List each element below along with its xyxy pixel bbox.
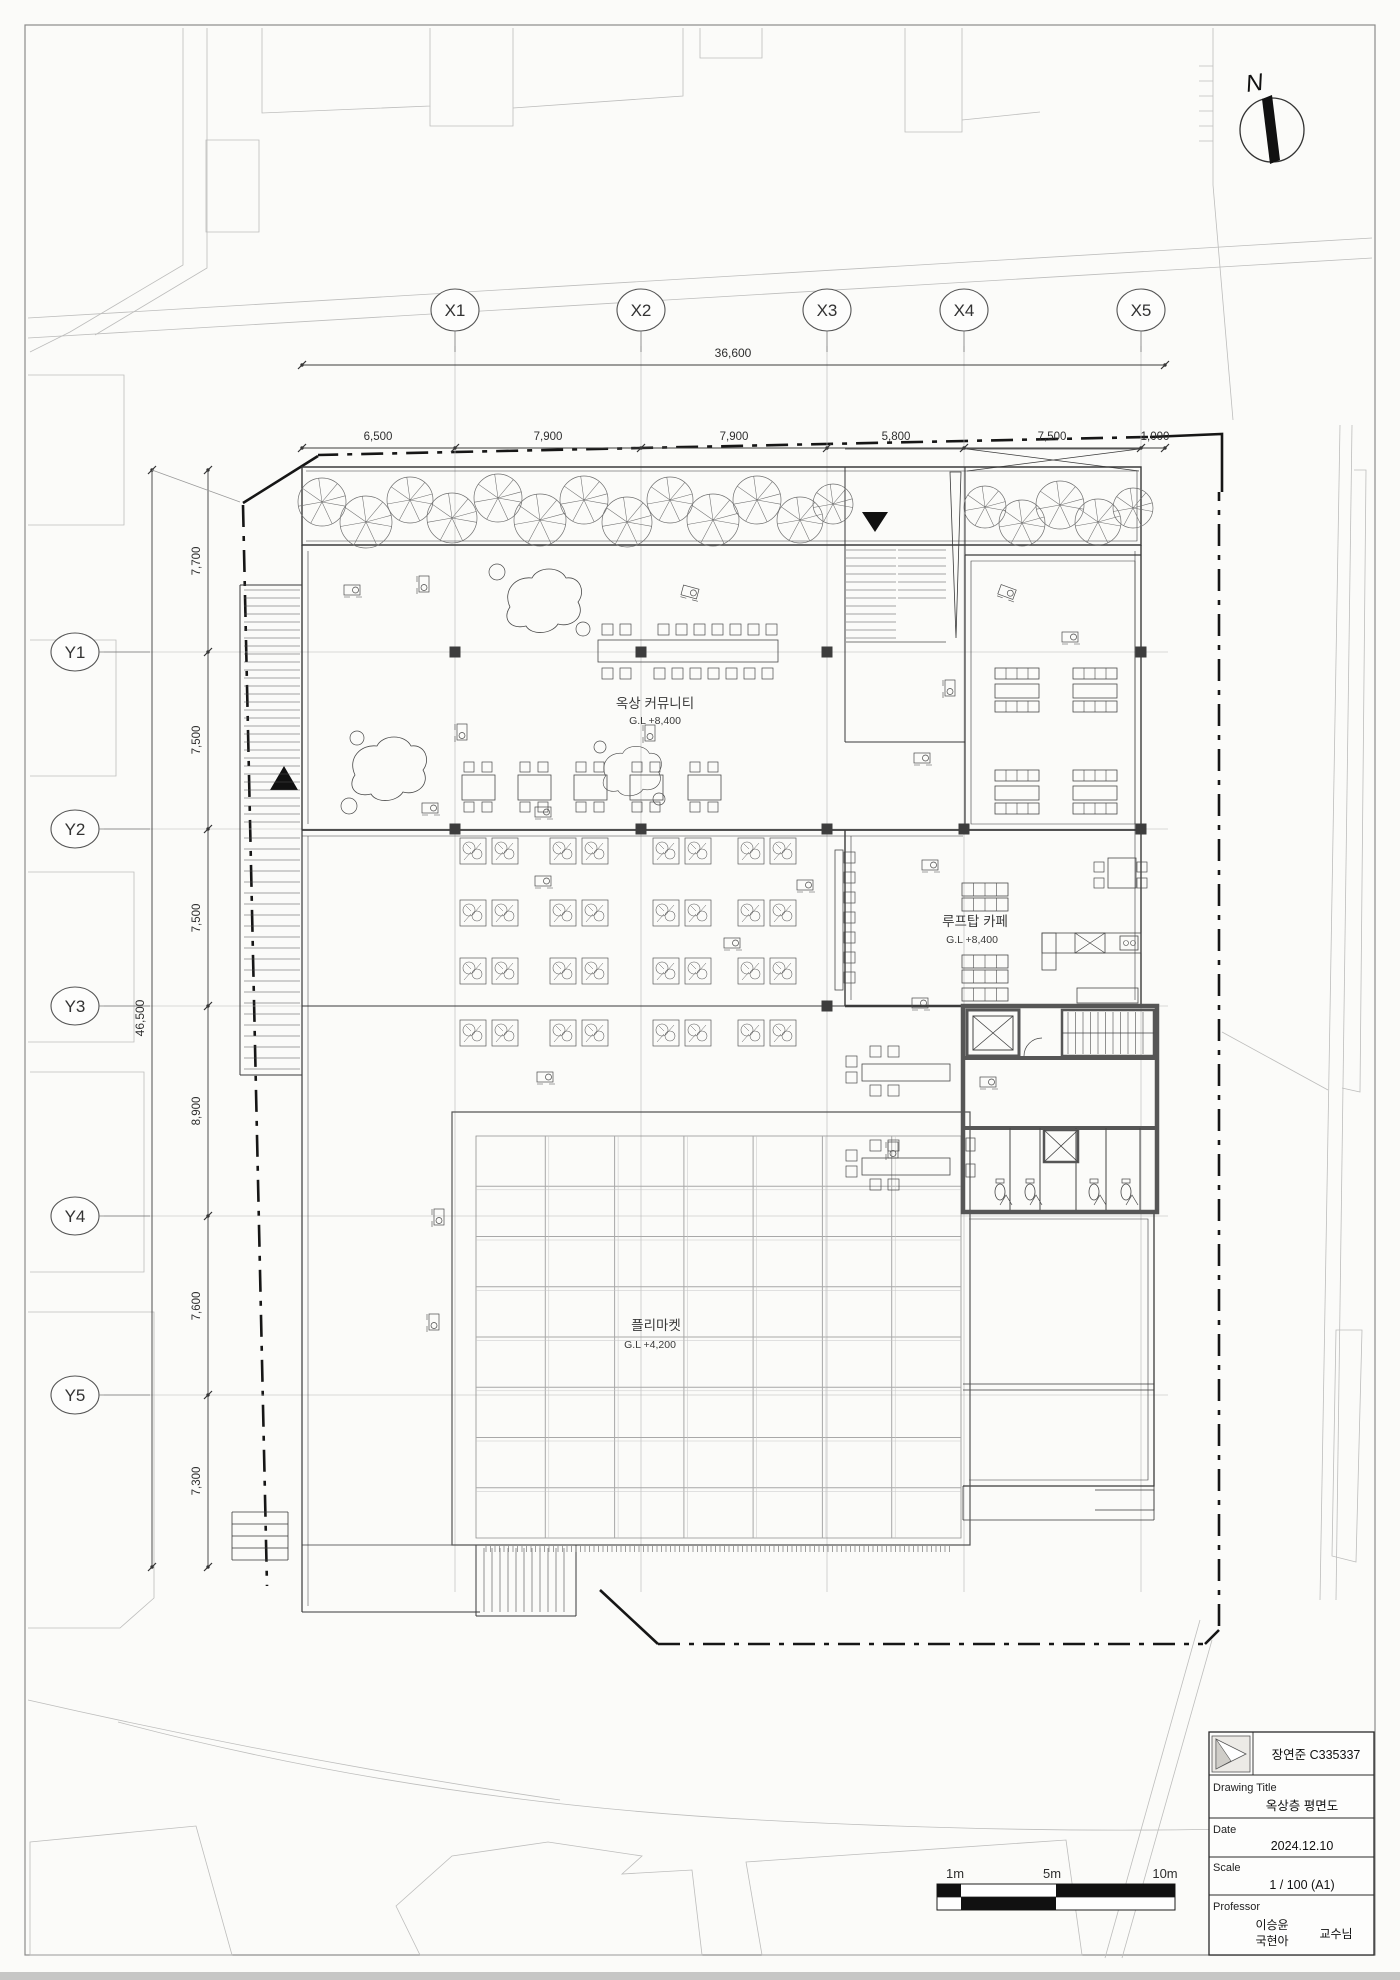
room-label-community: 옥상 커뮤니티 xyxy=(616,696,694,711)
dim-seg: 1,000 xyxy=(1141,431,1170,443)
room-label-cafe: 루프탑 카페 xyxy=(942,914,1008,929)
room-level-market: G.L +4,200 xyxy=(624,1339,676,1351)
grid-label-x3: X3 xyxy=(817,301,838,320)
dim-seg: 7,900 xyxy=(534,431,563,443)
dim-seg: 7,700 xyxy=(191,547,203,576)
grid-label-y2: Y2 xyxy=(65,820,86,839)
drawing-title-value: 옥상층 평면도 xyxy=(1266,1799,1338,1813)
professor-name-1: 이승윤 xyxy=(1255,1918,1288,1932)
professor-suffix: 교수님 xyxy=(1319,1927,1352,1941)
dim-seg: 7,600 xyxy=(191,1292,203,1321)
paper xyxy=(0,0,1400,1980)
room-label-market: 플리마켓 xyxy=(631,1318,681,1333)
column-marker xyxy=(636,824,647,835)
dim-seg: 7,500 xyxy=(191,726,203,755)
date-value: 2024.12.10 xyxy=(1271,1839,1334,1853)
column-marker xyxy=(450,824,461,835)
date-label: Date xyxy=(1213,1824,1236,1836)
dim-seg: 7,500 xyxy=(1038,431,1067,443)
professor-name-2: 국현아 xyxy=(1255,1934,1288,1948)
grid-label-x4: X4 xyxy=(954,301,975,320)
grid-label-x5: X5 xyxy=(1131,301,1152,320)
grid-label-y3: Y3 xyxy=(65,997,86,1016)
title-block: 장연준 C335337 Drawing Title 옥상층 평면도 Date 2… xyxy=(1209,1732,1374,1955)
grid-label-x2: X2 xyxy=(631,301,652,320)
dim-seg: 8,900 xyxy=(191,1097,203,1126)
column-marker xyxy=(450,647,461,658)
professor-label: Professor xyxy=(1213,1901,1260,1913)
dim-seg: 7,500 xyxy=(191,904,203,933)
drawing-sheet: 36,600 6,500 7,900 7,900 5,800 7,500 1,0… xyxy=(0,0,1400,1980)
grid-label-y1: Y1 xyxy=(65,643,86,662)
scale-label: Scale xyxy=(1213,1862,1241,1874)
floor-plan-canvas: 36,600 6,500 7,900 7,900 5,800 7,500 1,0… xyxy=(0,0,1400,1980)
scale-label-1m: 1m xyxy=(946,1866,964,1881)
column-marker xyxy=(822,824,833,835)
column-marker xyxy=(1136,824,1147,835)
dim-total-width: 36,600 xyxy=(715,346,752,360)
scale-bar-seg xyxy=(937,1884,961,1897)
scale-bar-seg xyxy=(1056,1884,1175,1897)
dim-seg: 7,900 xyxy=(720,431,749,443)
author-id: 장연준 C335337 xyxy=(1272,1748,1361,1762)
scale-bar-seg xyxy=(961,1897,1056,1910)
dim-seg: 5,800 xyxy=(882,431,911,443)
column-marker xyxy=(1136,647,1147,658)
dim-seg: 7,300 xyxy=(191,1467,203,1496)
scan-edge xyxy=(0,1972,1400,1980)
grid-label-x1: X1 xyxy=(445,301,466,320)
grid-label-y4: Y4 xyxy=(65,1207,86,1226)
scale-label-10m: 10m xyxy=(1152,1866,1177,1881)
dim-seg: 6,500 xyxy=(364,431,393,443)
room-level-community: G.L +8,400 xyxy=(629,715,681,727)
scale-label-5m: 5m xyxy=(1043,1866,1061,1881)
column-marker xyxy=(636,647,647,658)
drawing-title-label: Drawing Title xyxy=(1213,1782,1277,1794)
grid-label-y5: Y5 xyxy=(65,1386,86,1405)
dim-total-height: 46,500 xyxy=(133,999,147,1036)
room-level-cafe: G.L +8,400 xyxy=(946,934,998,946)
column-marker xyxy=(959,824,970,835)
scale-value: 1 / 100 (A1) xyxy=(1269,1878,1334,1892)
column-marker xyxy=(822,647,833,658)
column-marker xyxy=(822,1001,833,1012)
